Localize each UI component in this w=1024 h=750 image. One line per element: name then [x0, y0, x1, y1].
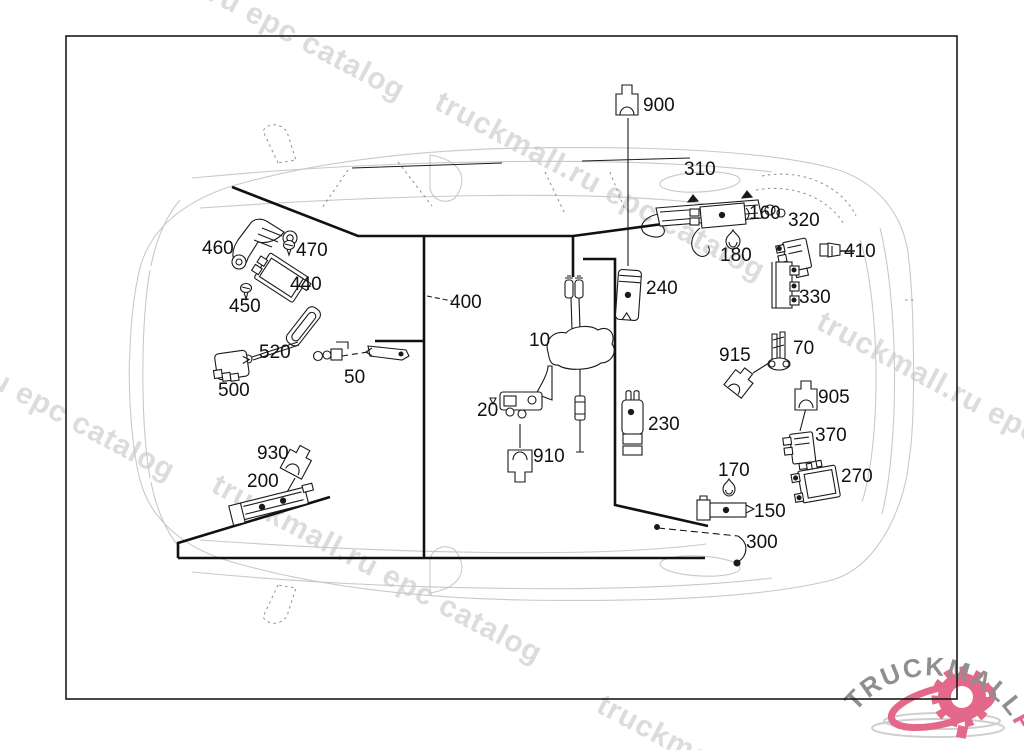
part-label-460[interactable]: 460 — [202, 239, 234, 258]
part-label-240[interactable]: 240 — [646, 279, 678, 298]
part-label-410[interactable]: 410 — [844, 242, 876, 261]
part-labels-layer: 9003101601803204102403304604704404505205… — [0, 0, 1024, 750]
part-label-900[interactable]: 900 — [643, 96, 675, 115]
part-label-500[interactable]: 500 — [218, 381, 250, 400]
part-label-450[interactable]: 450 — [229, 297, 261, 316]
part-label-170[interactable]: 170 — [718, 461, 750, 480]
part-label-905[interactable]: 905 — [818, 388, 850, 407]
part-label-910[interactable]: 910 — [533, 447, 565, 466]
part-label-10[interactable]: 10 — [529, 331, 550, 350]
part-label-310[interactable]: 310 — [684, 160, 716, 179]
part-label-440[interactable]: 440 — [290, 275, 322, 294]
part-label-320[interactable]: 320 — [788, 211, 820, 230]
part-label-370[interactable]: 370 — [815, 426, 847, 445]
part-label-300[interactable]: 300 — [746, 533, 778, 552]
part-label-400[interactable]: 400 — [450, 293, 482, 312]
part-label-20[interactable]: 20 — [477, 401, 498, 420]
part-label-270[interactable]: 270 — [841, 467, 873, 486]
part-label-50[interactable]: 50 — [344, 368, 365, 387]
part-label-70[interactable]: 70 — [793, 339, 814, 358]
part-label-160[interactable]: 160 — [749, 204, 781, 223]
part-label-200[interactable]: 200 — [247, 472, 279, 491]
part-label-180[interactable]: 180 — [720, 246, 752, 265]
part-label-470[interactable]: 470 — [296, 241, 328, 260]
epc-diagram-page: truckmall.ru epc catalogtruckmall.ru epc… — [0, 0, 1024, 750]
part-label-150[interactable]: 150 — [754, 502, 786, 521]
part-label-520[interactable]: 520 — [259, 343, 291, 362]
part-label-915[interactable]: 915 — [719, 346, 751, 365]
part-label-930[interactable]: 930 — [257, 444, 289, 463]
part-label-230[interactable]: 230 — [648, 415, 680, 434]
part-label-330[interactable]: 330 — [799, 288, 831, 307]
